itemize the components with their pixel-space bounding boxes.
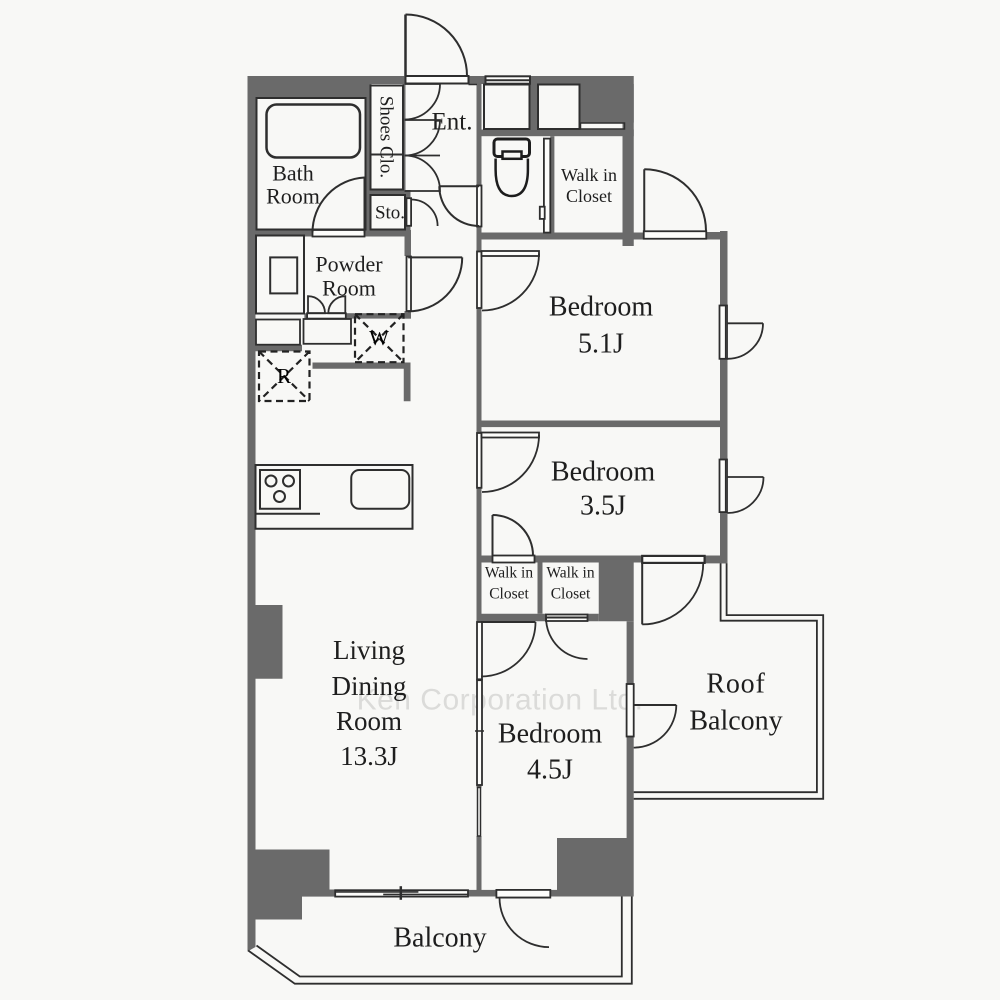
svg-text:Bath: Bath: [272, 161, 314, 186]
svg-text:Closet: Closet: [566, 186, 612, 206]
svg-text:R: R: [277, 364, 291, 388]
svg-text:Walk in: Walk in: [546, 565, 595, 582]
svg-text:Shoes Clo.: Shoes Clo.: [376, 96, 397, 178]
svg-text:Room: Room: [322, 276, 376, 301]
svg-text:Bedroom: Bedroom: [498, 719, 602, 750]
svg-text:5.1J: 5.1J: [578, 329, 624, 360]
svg-text:Walk in: Walk in: [561, 165, 617, 185]
svg-text:Bedroom: Bedroom: [549, 292, 653, 323]
svg-text:Walk in: Walk in: [485, 565, 534, 582]
svg-text:Dining: Dining: [331, 671, 406, 701]
svg-text:4.5J: 4.5J: [527, 755, 573, 786]
svg-text:3.5J: 3.5J: [580, 491, 626, 522]
svg-text:Closet: Closet: [489, 586, 529, 603]
svg-text:Room: Room: [336, 706, 402, 736]
svg-text:Room: Room: [266, 184, 320, 209]
svg-text:Closet: Closet: [551, 586, 591, 603]
svg-text:13.3J: 13.3J: [340, 741, 398, 771]
svg-text:Bedroom: Bedroom: [551, 457, 655, 488]
svg-text:Balcony: Balcony: [689, 706, 782, 737]
svg-text:Powder: Powder: [315, 252, 383, 277]
svg-text:Balcony: Balcony: [393, 923, 486, 954]
svg-text:Sto.: Sto.: [375, 203, 405, 224]
svg-text:W: W: [369, 326, 389, 350]
svg-text:Living: Living: [333, 635, 405, 665]
svg-text:Roof: Roof: [706, 669, 765, 700]
